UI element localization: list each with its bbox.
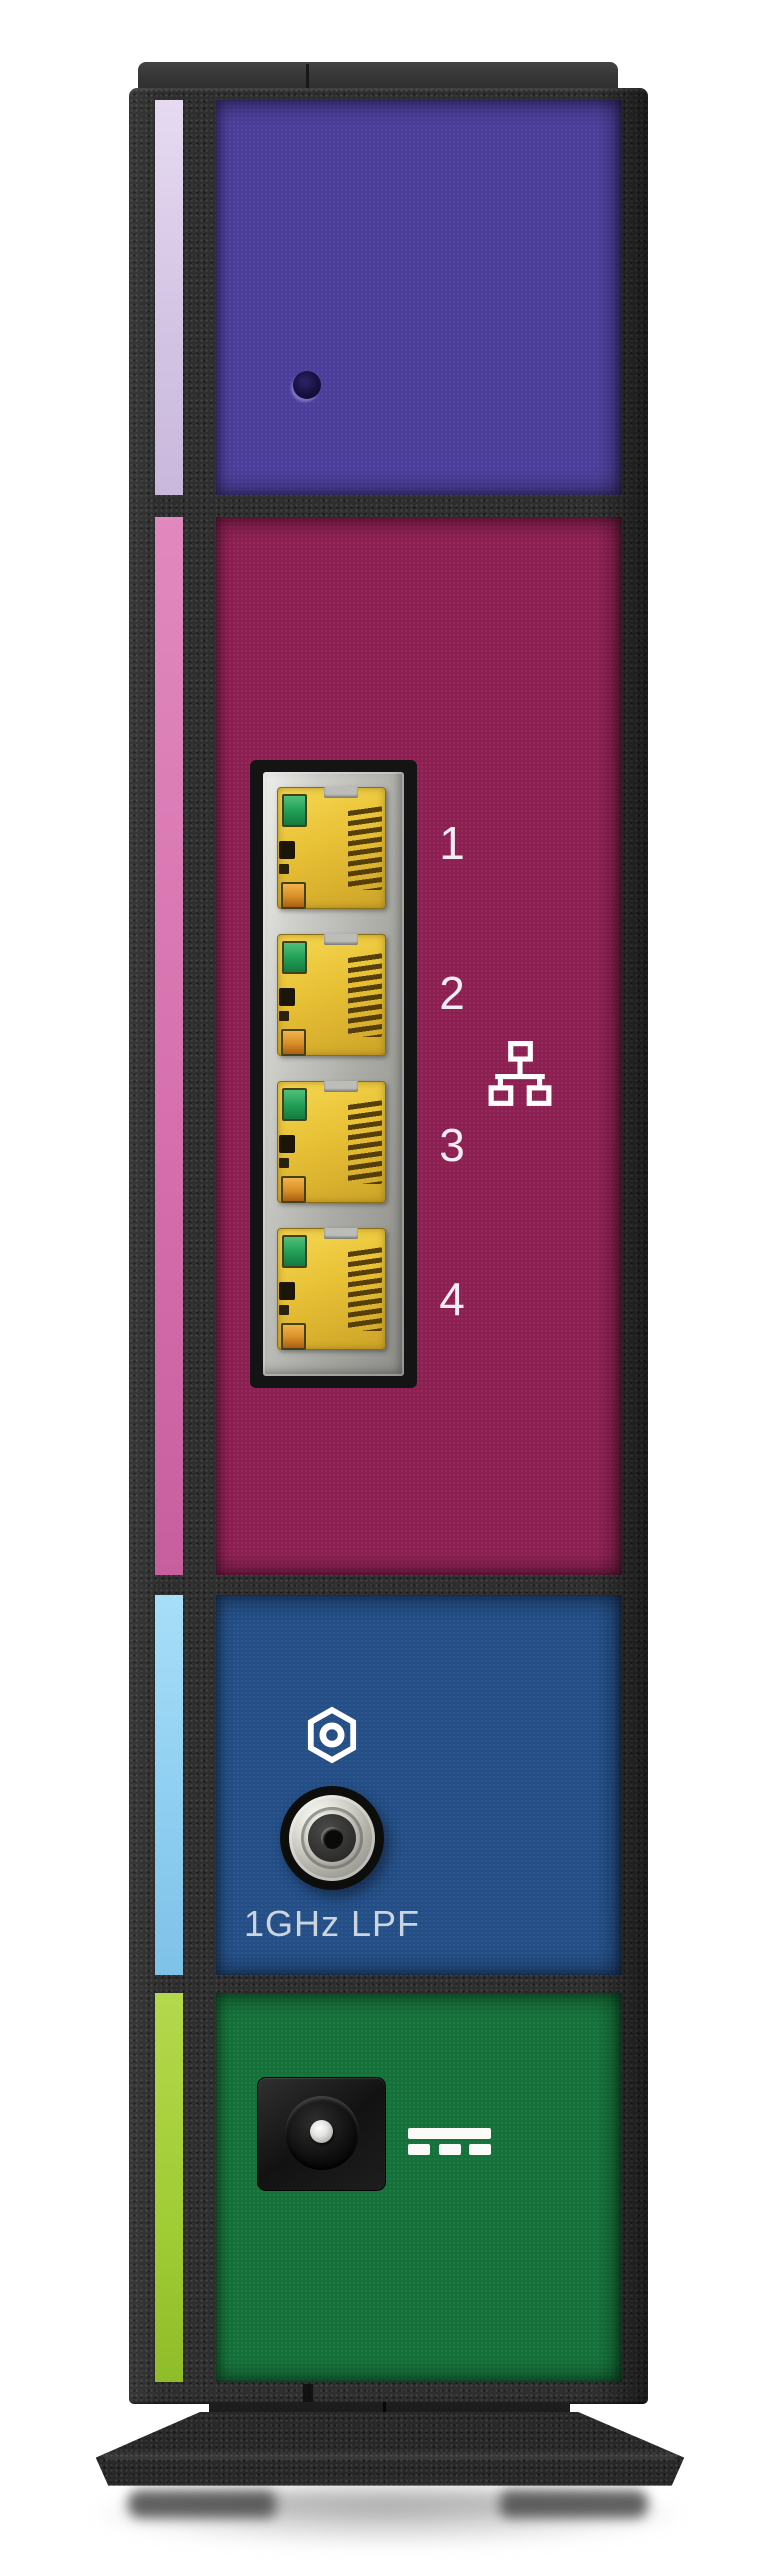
jack-contact-pins xyxy=(348,1247,382,1331)
stand-foot-right xyxy=(498,2490,648,2518)
purple-top-panel xyxy=(216,100,622,495)
jack-notch xyxy=(279,1011,289,1021)
activity-led-amber xyxy=(281,1029,306,1056)
dc-power-icon xyxy=(439,2144,461,2155)
activity-led-amber xyxy=(281,1176,306,1203)
jack-contact-pins xyxy=(348,1100,382,1184)
dc-power-icon xyxy=(469,2144,491,2155)
jack-notch xyxy=(279,1282,295,1300)
port-4-label: 4 xyxy=(432,1272,472,1326)
ethernet-port-4 xyxy=(277,1228,386,1350)
jack-notch xyxy=(279,841,295,859)
jack-latch-slot xyxy=(324,934,358,945)
accent-strip-coax-section xyxy=(155,1595,183,1975)
jack-notch xyxy=(279,1305,289,1315)
port-2-label: 2 xyxy=(432,966,472,1020)
dc-power-center-pin xyxy=(310,2120,333,2143)
coax-connector-hex-icon xyxy=(306,1706,358,1764)
stand-center-shadow xyxy=(272,2494,502,2512)
coax-port-label: 1GHz LPF xyxy=(222,1902,442,1946)
link-led-green xyxy=(282,1235,307,1268)
product-photo-stage: 1 2 3 4 1GHz LPF xyxy=(0,0,764,2560)
link-led-green xyxy=(282,794,307,827)
dc-power-icon xyxy=(408,2144,430,2155)
jack-latch-slot xyxy=(324,787,358,798)
accent-strip-ethernet-section xyxy=(155,517,183,1575)
ethernet-network-icon xyxy=(486,1040,554,1109)
stand-base-plate xyxy=(94,2408,686,2488)
coax-connector-hole xyxy=(321,1827,343,1849)
bottom-frame-seam xyxy=(303,2384,313,2402)
link-led-green xyxy=(282,941,307,974)
accent-strip-purple-section xyxy=(155,100,183,495)
ethernet-port-2 xyxy=(277,934,386,1056)
jack-notch xyxy=(279,988,295,1006)
jack-latch-slot xyxy=(324,1228,358,1239)
activity-led-amber xyxy=(281,1323,306,1350)
stand-foot-left xyxy=(128,2490,278,2518)
accent-strip-power-section xyxy=(155,1993,183,2382)
link-led-green xyxy=(282,1088,307,1121)
activity-led-amber xyxy=(281,882,306,909)
ethernet-port-1 xyxy=(277,787,386,909)
ethernet-port-3 xyxy=(277,1081,386,1203)
port-1-label: 1 xyxy=(432,816,472,870)
port-3-label: 3 xyxy=(432,1118,472,1172)
jack-latch-slot xyxy=(324,1081,358,1092)
jack-contact-pins xyxy=(348,953,382,1037)
dc-power-icon xyxy=(408,2128,491,2139)
jack-contact-pins xyxy=(348,806,382,890)
reset-pinhole xyxy=(293,371,321,399)
stand-base-edge-highlight xyxy=(94,2452,686,2460)
jack-notch xyxy=(279,1158,289,1168)
jack-notch xyxy=(279,1135,295,1153)
jack-notch xyxy=(279,864,289,874)
